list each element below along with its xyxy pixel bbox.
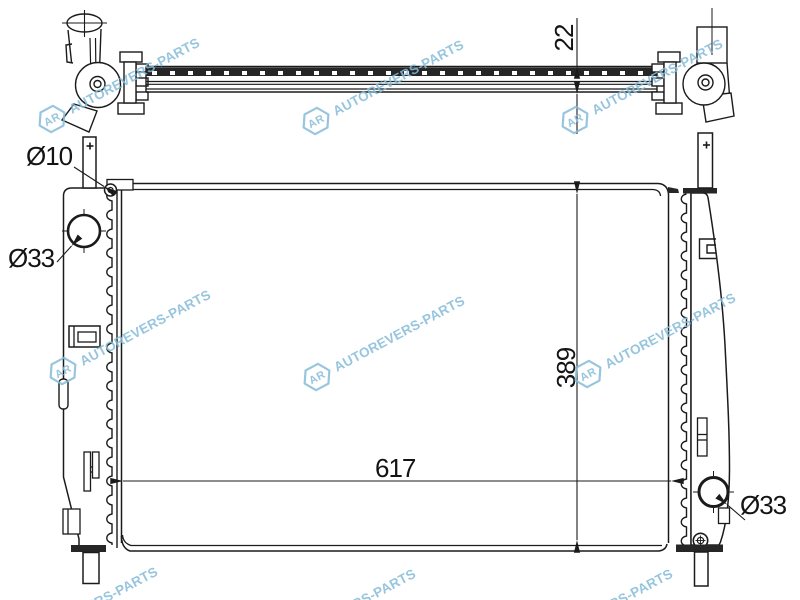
right-edge-notch [719, 508, 730, 524]
bleed-port-o10 [105, 184, 117, 196]
radiator-technical-drawing: 22 617 389 Ø10 Ø33 Ø33 AR AUTOREVERS-PAR… [0, 0, 800, 600]
left-bottom-mounting-pin [83, 553, 99, 584]
dim-depth-label: 22 [547, 21, 581, 55]
right-tank-top-bar [683, 188, 717, 194]
dim-left-port-label: Ø33 [8, 245, 54, 271]
outlet-port-o33 [699, 478, 728, 507]
left-bottom-clip [63, 509, 80, 534]
right-top-mounting-pin [698, 133, 713, 188]
dim-right-port-label: Ø33 [740, 492, 786, 518]
left-foot [71, 545, 106, 552]
left-h-clip [84, 452, 91, 491]
dim-small-port-label: Ø10 [26, 143, 72, 169]
left-serrated-strip [107, 191, 112, 545]
dim-width-label: 617 [375, 455, 415, 481]
right-serrated-strip [681, 194, 686, 546]
right-foot [676, 545, 723, 553]
right-bottom-mounting-pin [695, 552, 709, 586]
inlet-port-o33 [68, 215, 100, 247]
